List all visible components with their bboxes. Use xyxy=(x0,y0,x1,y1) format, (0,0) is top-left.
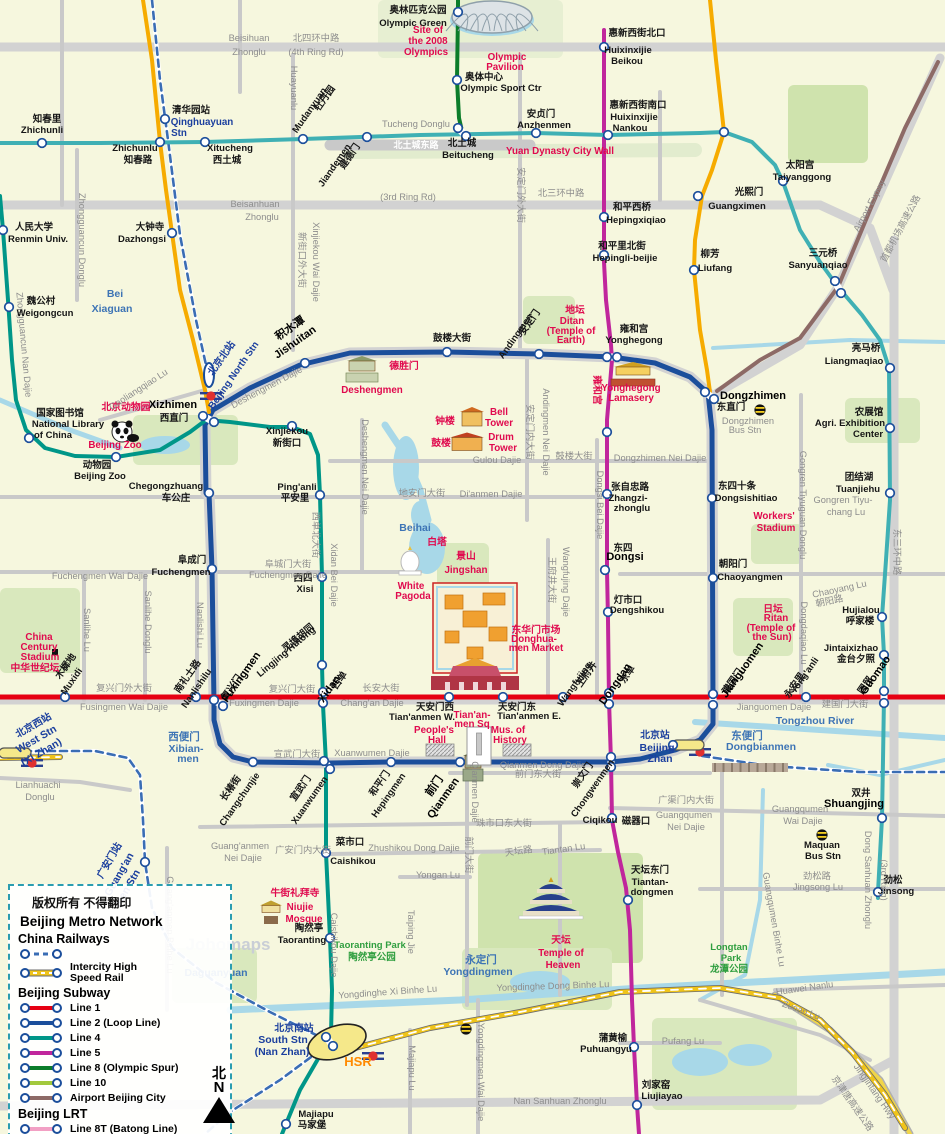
station-marker[interactable] xyxy=(326,765,335,774)
map-label: Wangfujing Dajie xyxy=(561,547,571,617)
map-label: 东直门 xyxy=(717,401,746,413)
map-label: Guang'anmen xyxy=(211,841,269,851)
map-label: Majiapu xyxy=(298,1109,334,1120)
interchange-station[interactable] xyxy=(880,687,889,708)
map-label: 阜城门大街 xyxy=(265,558,312,569)
map-label: 建国门大街 xyxy=(822,698,869,709)
map-label: Jintaixizhao xyxy=(824,643,879,654)
map-label: Xiaguan xyxy=(92,303,133,315)
station-marker[interactable] xyxy=(613,353,622,362)
station-marker[interactable] xyxy=(886,424,895,433)
station-marker[interactable] xyxy=(880,687,889,696)
map-label: Qianmen Dajie xyxy=(470,761,480,823)
map-label: chang Lu xyxy=(827,507,865,517)
map-label: Tower xyxy=(485,418,513,429)
map-label: Hepingli-beijie xyxy=(593,253,658,264)
map-label: 刘家窑 xyxy=(642,1079,671,1091)
map-label: Caishikou xyxy=(330,856,376,867)
legend-item-line-1: Line 1 xyxy=(18,1001,224,1015)
station-marker[interactable] xyxy=(837,289,846,298)
map-label: Liujiayao xyxy=(641,1091,682,1102)
map-label: Huixinxijie xyxy=(604,45,652,56)
map-label: Fusingmen Wai Dajie xyxy=(80,702,168,712)
map-label: 长安大街 xyxy=(362,682,399,693)
legend-item-label: Line 5 xyxy=(70,1048,100,1059)
map-label: 广渠门内大街 xyxy=(658,794,714,805)
map-label: Xizhimen xyxy=(149,399,198,411)
map-label: Beihai xyxy=(399,522,431,534)
station-marker[interactable] xyxy=(694,192,703,201)
station-marker[interactable] xyxy=(878,814,887,823)
map-label: Stadium xyxy=(21,652,60,663)
station-marker[interactable] xyxy=(603,428,612,437)
map-label: Sanlihe Donglu xyxy=(143,590,153,653)
map-label: Lamasery xyxy=(608,393,654,404)
legend-item xyxy=(18,947,224,961)
map-label: Yongdingmen Wai Dajie xyxy=(476,1023,486,1122)
map-label: Dengshikou xyxy=(610,605,665,616)
map-label: Xitucheng xyxy=(207,143,253,154)
map-label: 惠新西街南口 xyxy=(609,99,666,111)
station-marker[interactable] xyxy=(720,128,729,137)
map-label: National Library xyxy=(32,419,105,430)
map-label: Stadium xyxy=(757,523,796,534)
station-marker[interactable] xyxy=(603,353,612,362)
map-label: 奥体中心 xyxy=(464,71,504,83)
map-label: Guangqumen xyxy=(656,810,712,820)
map-label: 农展馆 xyxy=(854,406,884,418)
map-label: Dazhongsi xyxy=(118,234,166,245)
map-label: 地坛 xyxy=(565,303,585,316)
map-label: Taiping Jie xyxy=(406,910,416,954)
map-label: 太阳宫 xyxy=(786,159,815,171)
station-marker[interactable] xyxy=(445,693,454,702)
map-label: 劲松路 xyxy=(803,870,832,881)
map-label: 天坛 xyxy=(551,933,571,946)
map-label: Zhonglu xyxy=(232,47,266,57)
station-marker[interactable] xyxy=(161,115,170,124)
map-label: Maquan xyxy=(804,840,840,851)
map-label: Guangqumen xyxy=(772,804,828,814)
map-label: of China xyxy=(34,430,73,441)
map-label: 平安里 xyxy=(281,492,310,504)
map-label: Dongdaqiao Lu xyxy=(799,601,809,664)
map-label: Yonghegong xyxy=(605,335,663,346)
map-label: Liangmaqiao xyxy=(825,356,884,367)
map-label: 新街口 xyxy=(273,437,302,449)
legend-item-label: Line 8T (Batong Line) xyxy=(70,1124,177,1134)
station-marker[interactable] xyxy=(38,139,47,148)
map-label: Wai Dajie xyxy=(783,816,822,826)
station-marker[interactable] xyxy=(633,1101,642,1110)
station-marker[interactable] xyxy=(316,491,325,500)
map-label: 陶然亭公园 xyxy=(348,951,396,963)
map-label: Park xyxy=(721,953,742,964)
map-label: Beisihuan xyxy=(229,33,270,43)
station-marker[interactable] xyxy=(387,758,396,767)
map-label: Earth) xyxy=(557,335,585,346)
map-label: 安贞门 xyxy=(527,108,556,120)
station-marker[interactable] xyxy=(886,364,895,373)
legend-item-line-5: Line 5 xyxy=(18,1046,224,1060)
station-marker[interactable] xyxy=(210,696,219,705)
map-label: Hujialou xyxy=(842,605,880,616)
map-label: Xinjiekou Wai Dajie xyxy=(311,222,321,302)
legend-item-line-2-loop-line-: Line 2 (Loop Line) xyxy=(18,1016,224,1030)
map-label: Taiyanggong xyxy=(773,172,832,183)
map-label: 西单北大街 xyxy=(311,512,322,559)
map-label: 景山 xyxy=(456,549,476,562)
map-label: Tongzhou River xyxy=(776,715,855,727)
map-label: Chegongzhuang xyxy=(129,481,204,492)
map-label: Di'anmen Dajie xyxy=(460,489,523,499)
map-label: Jingsong Lu xyxy=(793,882,843,892)
legend-item-label: Line 2 (Loop Line) xyxy=(70,1018,160,1029)
map-label: Heaven xyxy=(546,960,581,971)
map-label: 蒲黄榆 xyxy=(599,1032,628,1044)
map-label: Chaoyangmen xyxy=(717,572,783,583)
map-label: Olympics xyxy=(404,47,449,58)
legend-item-line-8t-batong-line-: Line 8T (Batong Line) xyxy=(18,1122,224,1134)
legend-item-label: Line 1 xyxy=(70,1003,100,1014)
map-label: Puhuangyu xyxy=(580,1044,632,1055)
legend-section-heading: Beijing LRT xyxy=(18,1107,224,1121)
legend-section-heading: China Railways xyxy=(18,932,224,946)
legend-items: China RailwaysIntercity HighSpeed RailBe… xyxy=(18,932,224,1134)
map-label: 亮马桥 xyxy=(852,342,881,354)
map-label: Xinjiekou xyxy=(266,426,308,437)
map-label: 动物园 xyxy=(83,459,112,471)
map-label: Tian'anmen W. xyxy=(389,712,455,723)
station-marker[interactable] xyxy=(456,758,465,767)
map-label: 北土城东路 xyxy=(393,139,439,150)
map-label: Zhongguancun Donglu xyxy=(77,193,87,287)
map-label: 鼓楼大街 xyxy=(433,332,472,344)
map-label: Zhan xyxy=(647,753,672,765)
map-label: Zhonglu xyxy=(245,212,279,222)
station-marker[interactable] xyxy=(0,226,7,235)
legend-section-heading: Beijing Subway xyxy=(18,986,224,1000)
map-label: 北京站 xyxy=(640,728,670,741)
map-label: 地安门大街 xyxy=(399,487,446,498)
map-label: Beisanhuan xyxy=(230,199,279,209)
map-label: HSR xyxy=(344,1054,372,1069)
map-label: (3rd Ring) xyxy=(879,859,889,900)
station-marker[interactable] xyxy=(443,348,452,357)
map-label: Dongsi Bei Dajie xyxy=(595,471,605,540)
map-label: 宣武门大街 xyxy=(274,748,321,759)
map-label: Dongsishitiao xyxy=(715,493,778,504)
station-marker[interactable] xyxy=(709,574,718,583)
station-marker[interactable] xyxy=(5,303,14,312)
map-label: the 2008 xyxy=(408,36,448,47)
station-marker[interactable] xyxy=(318,661,327,670)
map-label: 白塔 xyxy=(427,535,447,548)
map-label: 珠市口东大街 xyxy=(476,817,532,828)
map-label: dongmen xyxy=(631,887,674,898)
map-label: Bus Stn xyxy=(729,425,762,435)
station-marker[interactable] xyxy=(199,412,208,421)
map-label: Site of xyxy=(413,25,444,36)
map-label: Dongzhimen Nei Dajie xyxy=(614,453,707,463)
bus-icon xyxy=(754,404,765,415)
map-label: 和平西桥 xyxy=(612,201,652,213)
map-label: 东三环中路 xyxy=(892,529,903,576)
map-label: 天坛东门 xyxy=(631,864,669,876)
map-label: men xyxy=(177,753,199,765)
map-label: 阜成门 xyxy=(178,554,207,566)
map-label: Dongsi xyxy=(606,551,643,563)
map-label: 北四环中路 xyxy=(293,32,340,43)
map-label: 东四十条 xyxy=(718,480,757,492)
map-label: 魏公村 xyxy=(26,295,56,307)
map-label: Taoranting xyxy=(278,935,327,946)
map-label: 呼家楼 xyxy=(846,615,875,627)
map-label: Workers' xyxy=(753,511,794,522)
legend-item-airport-beijing-city: Airport Beijing City xyxy=(18,1091,224,1105)
map-label: Fuchengmen xyxy=(151,567,210,578)
map-label: Caishikou Dajie xyxy=(329,913,339,978)
station-marker[interactable] xyxy=(168,229,177,238)
bus-icon xyxy=(460,1023,471,1034)
map-label: Pufang Lu xyxy=(662,1036,704,1046)
map-label: Beijing Zoo xyxy=(74,471,126,482)
map-label: Sanlihe Lu xyxy=(82,608,92,652)
map-label: 菜市口 xyxy=(335,836,365,848)
station-marker[interactable] xyxy=(249,758,258,767)
map-label: men Market xyxy=(509,643,564,654)
map-label: Nanlishi Lu xyxy=(195,602,205,648)
map-label: Longtan xyxy=(710,942,748,953)
map-label: Chang'an Dajie xyxy=(340,698,403,708)
interchange-station[interactable] xyxy=(709,690,718,710)
map-label: Drum xyxy=(488,432,514,443)
legend-item-label: Airport Beijing City xyxy=(70,1093,166,1104)
map-label: 龙潭公园 xyxy=(709,963,748,975)
map-label: Huayuanlu xyxy=(289,66,299,110)
map-label: Shuangjing xyxy=(824,798,884,810)
park-area xyxy=(788,85,868,163)
map-label: 团结湖 xyxy=(845,471,874,483)
map-label: 雍和宫 xyxy=(620,323,649,335)
map-label: Temple of xyxy=(538,948,584,959)
legend-item-line-8-olympic-spur-: Line 8 (Olympic Spur) xyxy=(18,1061,224,1075)
map-label: Niujie xyxy=(287,902,314,913)
map-label: Fuchengmen Wai Dajie xyxy=(52,571,148,581)
map-label: Olympic Sport Ctr xyxy=(460,83,542,94)
map-label: 安定门外大街 xyxy=(516,167,527,223)
map-label: Dongbianmen xyxy=(726,741,796,753)
map-label: 王府井大街 xyxy=(547,557,558,604)
station-marker[interactable] xyxy=(886,489,895,498)
map-label: 金台夕照 xyxy=(836,653,876,665)
map-label: History xyxy=(493,735,527,746)
station-marker[interactable] xyxy=(112,453,121,462)
map-label: Beikou xyxy=(611,56,643,67)
map-label: Center xyxy=(853,429,883,440)
map-label: Tuanjiehu xyxy=(836,484,880,495)
map-label: Yongan Lu xyxy=(416,870,460,880)
map-label: 磁器口 xyxy=(622,815,651,827)
legend-item-line-10: Line 10 xyxy=(18,1076,224,1090)
station-marker[interactable] xyxy=(210,418,219,427)
map-label: (Nan Zhan) xyxy=(255,1046,310,1058)
map-label: 三元桥 xyxy=(809,247,838,259)
station-marker[interactable] xyxy=(601,566,610,575)
map-label: Sanyuanqiao xyxy=(788,260,847,271)
map-label: 国家图书馆 xyxy=(36,407,84,419)
map-label: (3rd Ring Rd) xyxy=(380,192,436,202)
station-marker[interactable] xyxy=(880,699,889,708)
station-marker[interactable] xyxy=(701,388,710,397)
map-label: 人民大学 xyxy=(15,221,54,233)
station-marker[interactable] xyxy=(301,359,310,368)
map-label: Ping'anli xyxy=(277,482,316,493)
map-label: 鼓楼 xyxy=(431,436,451,449)
map-label: Dongzhimen xyxy=(720,390,786,402)
station-marker[interactable] xyxy=(299,135,308,144)
map-label: Taoranting Park xyxy=(334,940,406,951)
map-label: 陶然亭 xyxy=(295,922,324,934)
map-label: Majiapu Lu xyxy=(407,1045,417,1090)
map-label: Jianguomen Dajie xyxy=(737,702,811,712)
station-marker[interactable] xyxy=(454,8,463,17)
map-label: 大钟寺 xyxy=(136,221,165,233)
station-marker[interactable] xyxy=(322,1033,331,1042)
map-label: Lianhuachi xyxy=(16,780,61,790)
map-label: 北三环中路 xyxy=(538,187,585,198)
map-label: the Sun) xyxy=(752,632,791,643)
map-label: Stn xyxy=(171,128,187,139)
map-label: Anzhenmen xyxy=(517,120,571,131)
map-label: Deshengmen Nei Dajie xyxy=(360,419,370,515)
station-marker[interactable] xyxy=(363,133,372,142)
map-label: Tower xyxy=(489,443,517,454)
map-label: Nankou xyxy=(613,123,648,134)
map-label: Gongren Tiyu- xyxy=(814,495,873,505)
platform-icon xyxy=(712,763,788,772)
map-label: 钟楼 xyxy=(435,414,455,427)
legend-item-label: Line 8 (Olympic Spur) xyxy=(70,1063,179,1074)
compass-north-letter: N xyxy=(196,1080,242,1095)
map-label: Liufang xyxy=(698,263,732,274)
monument-icon xyxy=(467,727,491,765)
map-label: Huixinxijie xyxy=(610,112,658,123)
lake xyxy=(672,1048,728,1076)
station-marker[interactable] xyxy=(320,757,329,766)
map-label: 前门东大街 xyxy=(515,768,562,779)
station-marker[interactable] xyxy=(604,131,613,140)
map-label: 中华世纪坛 xyxy=(11,661,60,674)
station-marker[interactable] xyxy=(25,434,34,443)
map-label: Qinghuayuan xyxy=(171,117,234,128)
map-label: Fuxingmen Dajie xyxy=(229,698,299,708)
compass-north-zh: 北 xyxy=(196,1066,242,1080)
map-label: 车公庄 xyxy=(162,492,191,504)
station-marker[interactable] xyxy=(831,277,840,286)
lake xyxy=(728,1044,772,1066)
station-marker[interactable] xyxy=(454,124,463,133)
map-label: Jingshan xyxy=(444,565,487,576)
map-label: South Stn xyxy=(258,1034,308,1046)
map-label: 安定门内大街 xyxy=(525,404,536,460)
map-label: Hall xyxy=(428,735,446,746)
station-marker[interactable] xyxy=(709,701,718,710)
map-label: 新街口外大街 xyxy=(297,232,308,288)
station-marker[interactable] xyxy=(329,1042,338,1051)
compass: 北 N xyxy=(196,1066,242,1123)
map-label: (4th Ring Rd) xyxy=(288,47,343,57)
map-label: Gongren Tiyuguan Donglu xyxy=(798,451,808,560)
map-label: Zhushikou Dong Dajie xyxy=(368,843,459,853)
beijing-metro-map: 奥林匹克公园Olympic GreenSite ofthe 2008Olympi… xyxy=(0,0,945,1134)
map-label: Beitucheng xyxy=(442,150,494,161)
map-label: Xuanwumen Dajie xyxy=(334,748,409,758)
station-marker[interactable] xyxy=(535,350,544,359)
map-label: Tian'anmen E. xyxy=(497,711,561,722)
map-label: Hepingxiqiao xyxy=(606,215,666,226)
station-marker[interactable] xyxy=(499,693,508,702)
map-label: men Sq xyxy=(454,719,489,730)
map-label: 光熙门 xyxy=(734,186,764,198)
map-label: 北京南站 xyxy=(274,1021,313,1034)
map-label: 西直门 xyxy=(160,412,189,424)
map-label: Nei Dajie xyxy=(667,822,705,832)
station-marker[interactable] xyxy=(802,693,811,702)
map-label: 和平里北街 xyxy=(597,240,646,252)
map-label: 柳芳 xyxy=(700,248,720,260)
map-label: 张自忠路 xyxy=(611,481,650,493)
station-marker[interactable] xyxy=(141,858,150,867)
map-label: Donglu xyxy=(25,792,54,802)
map-label: zhonglu xyxy=(614,503,651,514)
map-label: Dong Sanhuan Zhonglu xyxy=(863,831,873,929)
interchange-station[interactable] xyxy=(603,353,622,362)
legend-item-label: Line 10 xyxy=(70,1078,106,1089)
map-label: Guangximen xyxy=(708,201,766,212)
map-label: 马家堡 xyxy=(298,1119,327,1131)
map-label: Nei Dajie xyxy=(224,853,262,863)
deshengmen-icon xyxy=(346,356,378,382)
map-label: Andingmen Nei Dajie xyxy=(541,388,551,475)
station-marker[interactable] xyxy=(282,1120,291,1129)
station-marker[interactable] xyxy=(205,489,214,498)
map-label: Renmin Univ. xyxy=(8,234,68,245)
map-label: Nan Sanhuan Zhonglu xyxy=(513,1096,606,1106)
map-label: 清华园站 xyxy=(172,104,211,116)
map-label: 西便门 xyxy=(168,730,200,743)
map-label: Tucheng Donglu xyxy=(382,119,450,129)
map-label: 复兴门外大街 xyxy=(96,682,152,693)
map-label: Agri. Exhibition xyxy=(815,418,885,429)
legend-item-line-4: Line 4 xyxy=(18,1031,224,1045)
map-label: 牛街礼拜寺 xyxy=(271,886,320,899)
map-label: Yuan Dynasty City Wall xyxy=(506,146,614,157)
legend-item-label: Intercity HighSpeed Rail xyxy=(70,962,137,984)
station-marker[interactable] xyxy=(709,690,718,699)
map-label: 朝阳门 xyxy=(719,558,748,570)
map-label: 鼓楼大街 xyxy=(555,450,592,461)
map-label: 德胜门 xyxy=(388,359,419,372)
legend-item-label: Line 4 xyxy=(70,1033,100,1044)
legend-title: Beijing Metro Network xyxy=(20,914,224,929)
map-label: Bell xyxy=(490,407,508,418)
map-label: 惠新西街北口 xyxy=(608,27,665,39)
map-label: Xisi xyxy=(297,584,314,595)
map-label: Deshengmen xyxy=(341,385,403,396)
map-label: Weigongcun xyxy=(17,308,74,319)
map-label: 奥林匹克公园 xyxy=(388,4,446,16)
